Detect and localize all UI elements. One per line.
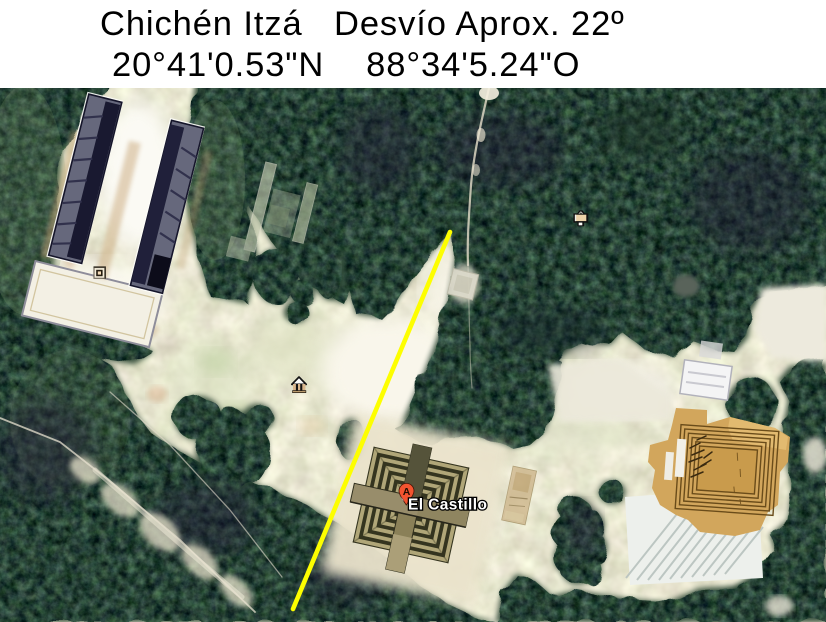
svg-text:Chichén Itzá Desvío Aprox. 2: Chichén Itzá Desvío Aprox. 22º <box>100 5 625 43</box>
svg-text:El Castillo: El Castillo <box>408 497 487 514</box>
svg-text:20°41'0.53"N 88°34'5.24"O: 20°41'0.53"N 88°34'5.24"O <box>112 46 580 84</box>
